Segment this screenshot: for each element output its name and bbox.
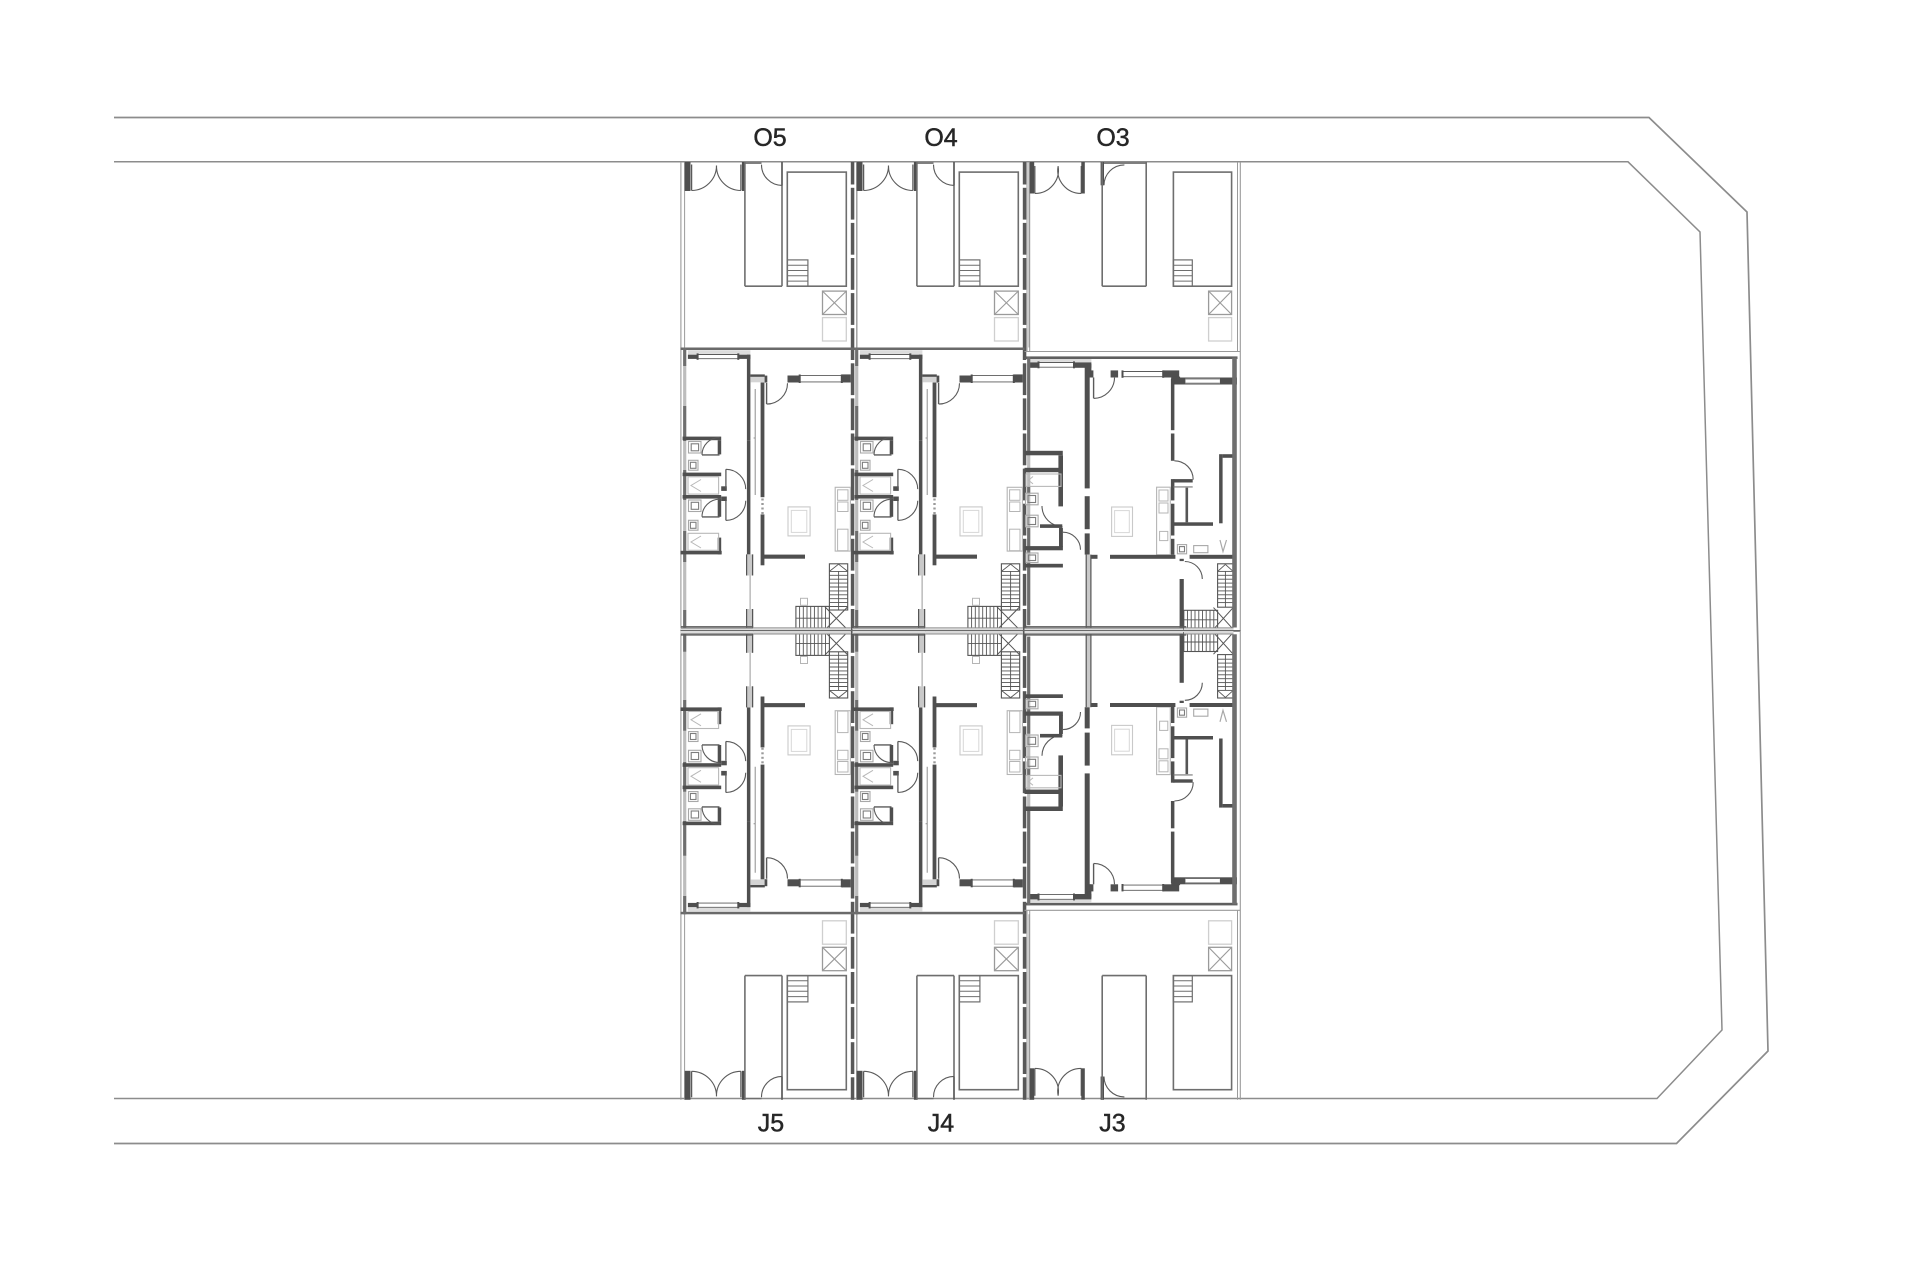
svg-text:O5: O5: [753, 124, 786, 152]
svg-text:O4: O4: [924, 124, 957, 152]
svg-text:O3: O3: [1096, 124, 1129, 152]
svg-text:J4: J4: [928, 1110, 955, 1138]
svg-text:J5: J5: [758, 1110, 784, 1138]
svg-text:J3: J3: [1099, 1110, 1125, 1138]
